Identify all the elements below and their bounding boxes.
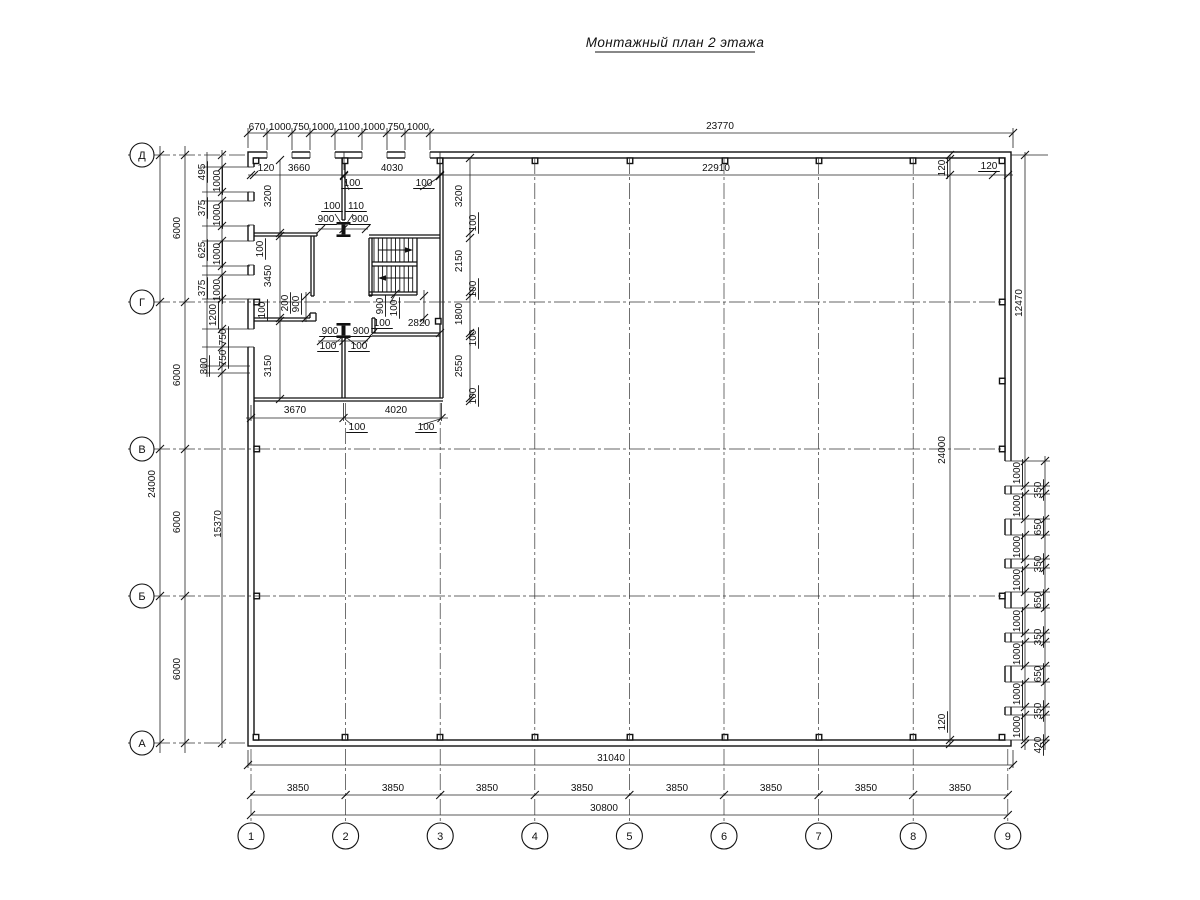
col-axis-label: 8 bbox=[910, 831, 916, 843]
svg-text:100: 100 bbox=[349, 422, 366, 433]
drawing-sheet: Монтажный план 2 этажа 67010007501000110… bbox=[0, 0, 1200, 900]
dim-label: 22910 bbox=[702, 163, 730, 174]
svg-text:670: 670 bbox=[249, 122, 266, 133]
dim-label: 1100 bbox=[338, 122, 360, 133]
row-axis-label: Д bbox=[138, 150, 146, 162]
col-axis-label: 4 bbox=[532, 831, 538, 843]
svg-text:300: 300 bbox=[199, 357, 210, 374]
dim-label: 375 bbox=[197, 277, 208, 299]
dim-label: 1000 bbox=[212, 276, 223, 304]
svg-text:1000: 1000 bbox=[363, 122, 386, 133]
svg-text:100: 100 bbox=[389, 299, 400, 316]
svg-text:100: 100 bbox=[257, 301, 268, 318]
dim-label: 1000 bbox=[1012, 713, 1023, 741]
svg-text:750: 750 bbox=[218, 328, 229, 345]
svg-text:6000: 6000 bbox=[172, 510, 183, 533]
arrow-right-icon bbox=[405, 247, 413, 252]
dim-label: 1800 bbox=[454, 302, 465, 325]
dim-label: 6000 bbox=[172, 510, 183, 533]
dim-label: 750 bbox=[293, 122, 310, 133]
dim-label: 3850 bbox=[571, 783, 594, 794]
dim-label: 3200 bbox=[263, 184, 274, 207]
svg-text:1000: 1000 bbox=[212, 278, 223, 301]
svg-text:24000: 24000 bbox=[147, 470, 158, 498]
col-axis-label: 3 bbox=[437, 831, 443, 843]
svg-text:100: 100 bbox=[468, 280, 479, 297]
svg-text:12470: 12470 bbox=[1014, 289, 1025, 317]
dim-label: 2150 bbox=[454, 249, 465, 272]
window-opening bbox=[247, 275, 255, 299]
dim-label: 1000 bbox=[363, 122, 386, 133]
col-axis-label: 6 bbox=[721, 831, 727, 843]
svg-text:1000: 1000 bbox=[1012, 494, 1023, 517]
svg-text:120: 120 bbox=[258, 163, 275, 174]
svg-text:900: 900 bbox=[318, 214, 335, 225]
svg-text:1000: 1000 bbox=[212, 169, 223, 192]
svg-text:900: 900 bbox=[322, 326, 339, 337]
svg-text:120: 120 bbox=[981, 161, 998, 172]
window-opening bbox=[247, 201, 255, 225]
dim-label: 3850 bbox=[760, 783, 783, 794]
svg-text:3850: 3850 bbox=[287, 783, 310, 794]
svg-text:375: 375 bbox=[197, 199, 208, 216]
dim-label: 24000 bbox=[147, 470, 158, 498]
svg-text:100: 100 bbox=[468, 214, 479, 231]
svg-text:3850: 3850 bbox=[382, 783, 405, 794]
dim-tick bbox=[391, 290, 399, 298]
svg-text:900: 900 bbox=[353, 326, 370, 337]
dim-label: 4030 bbox=[381, 163, 404, 174]
svg-text:1200: 1200 bbox=[208, 303, 219, 326]
svg-text:22910: 22910 bbox=[702, 163, 730, 174]
column-mark bbox=[342, 158, 348, 164]
column-mark bbox=[722, 735, 728, 741]
dim-label: 100 bbox=[346, 422, 368, 433]
dim-label: 3850 bbox=[382, 783, 405, 794]
svg-text:375: 375 bbox=[197, 279, 208, 296]
dim-label: 3850 bbox=[287, 783, 310, 794]
svg-text:24000: 24000 bbox=[937, 436, 948, 464]
window-opening bbox=[247, 167, 255, 192]
dim-label: 495 bbox=[197, 161, 208, 183]
svg-text:1100: 1100 bbox=[338, 122, 360, 133]
svg-text:1000: 1000 bbox=[1012, 642, 1023, 665]
dim-label: 100 bbox=[348, 341, 370, 352]
svg-text:3850: 3850 bbox=[855, 783, 878, 794]
svg-text:4030: 4030 bbox=[381, 163, 404, 174]
dim-label: 1000 bbox=[269, 122, 292, 133]
dim-label: 100 bbox=[341, 178, 363, 189]
svg-text:3850: 3850 bbox=[949, 783, 972, 794]
svg-text:4020: 4020 bbox=[385, 405, 408, 416]
column-mark bbox=[342, 735, 348, 741]
svg-text:6000: 6000 bbox=[172, 363, 183, 386]
dim-label: 375 bbox=[197, 197, 208, 219]
dim-label: 6000 bbox=[172, 216, 183, 239]
dim-label: 3850 bbox=[666, 783, 689, 794]
dim-label: 100 bbox=[468, 327, 479, 349]
arrow-left-icon bbox=[378, 275, 386, 280]
column-mark bbox=[436, 319, 442, 325]
column-mark bbox=[253, 735, 259, 741]
dim-label: 120 bbox=[978, 161, 1000, 172]
svg-text:100: 100 bbox=[344, 178, 361, 189]
dim-label: 350 bbox=[1033, 553, 1044, 575]
svg-text:3660: 3660 bbox=[288, 163, 311, 174]
dim-label: 900 bbox=[349, 214, 371, 225]
svg-text:15370: 15370 bbox=[213, 510, 224, 538]
dim-label: 750 bbox=[388, 122, 405, 133]
svg-text:100: 100 bbox=[374, 318, 391, 329]
drawing-title: Монтажный план 2 этажа bbox=[586, 35, 765, 50]
svg-text:1000: 1000 bbox=[269, 122, 292, 133]
window-opening bbox=[362, 151, 387, 159]
i-beam-web bbox=[342, 326, 346, 336]
dim-label: 1000 bbox=[1012, 566, 1023, 594]
dim-label: 3850 bbox=[855, 783, 878, 794]
svg-text:350: 350 bbox=[1033, 555, 1044, 572]
dim-label: 1200 bbox=[208, 301, 219, 329]
window-opening bbox=[1004, 535, 1012, 559]
dim-label: 900 bbox=[315, 214, 337, 225]
dim-label: 670 bbox=[249, 122, 266, 133]
dim-label: 6000 bbox=[172, 657, 183, 680]
svg-text:900: 900 bbox=[291, 295, 302, 312]
i-beam-flange bbox=[337, 323, 351, 326]
svg-text:3450: 3450 bbox=[263, 264, 274, 287]
dim-label: 1000 bbox=[212, 167, 223, 195]
dim-label: 23770 bbox=[706, 121, 734, 132]
dim-label: 1000 bbox=[1012, 680, 1023, 708]
svg-text:3850: 3850 bbox=[760, 783, 783, 794]
dim-label: 15370 bbox=[213, 510, 224, 538]
col-axis-label: 7 bbox=[816, 831, 822, 843]
dim-label: 3660 bbox=[288, 163, 311, 174]
svg-text:900: 900 bbox=[352, 214, 369, 225]
dim-label: 100 bbox=[371, 318, 393, 329]
svg-text:3670: 3670 bbox=[284, 405, 307, 416]
svg-text:350: 350 bbox=[1033, 481, 1044, 498]
svg-text:1000: 1000 bbox=[1012, 682, 1023, 705]
svg-text:1800: 1800 bbox=[454, 302, 465, 325]
dim-label: 4020 bbox=[385, 405, 408, 416]
svg-text:120: 120 bbox=[937, 713, 948, 730]
dim-label: 350 bbox=[1033, 700, 1044, 722]
svg-text:23770: 23770 bbox=[706, 121, 734, 132]
svg-text:1000: 1000 bbox=[1012, 609, 1023, 632]
column-mark bbox=[627, 735, 633, 741]
svg-text:100: 100 bbox=[255, 240, 266, 257]
svg-text:31040: 31040 bbox=[597, 753, 625, 764]
dim-label: 12470 bbox=[1014, 289, 1025, 317]
dim-label: 120 bbox=[937, 711, 948, 733]
dim-label: 300 bbox=[199, 355, 210, 377]
dim-label: 350 bbox=[1033, 626, 1044, 648]
svg-text:1000: 1000 bbox=[312, 122, 335, 133]
dim-label: 900 bbox=[319, 326, 341, 337]
dim-label: 120 bbox=[258, 163, 275, 174]
window-opening bbox=[1004, 494, 1012, 519]
column-mark bbox=[627, 158, 633, 164]
dim-label: 120 bbox=[937, 157, 948, 179]
svg-text:750: 750 bbox=[293, 122, 310, 133]
dim-label: 100 bbox=[468, 278, 479, 300]
svg-text:1000: 1000 bbox=[212, 203, 223, 226]
svg-text:3850: 3850 bbox=[571, 783, 594, 794]
svg-text:650: 650 bbox=[1033, 665, 1044, 682]
svg-text:350: 350 bbox=[1033, 702, 1044, 719]
dim-label: 100 bbox=[255, 238, 266, 260]
row-axis-label: А bbox=[138, 738, 146, 750]
dim-label: 3450 bbox=[263, 264, 274, 287]
dim-label: 1000 bbox=[212, 201, 223, 229]
window-opening bbox=[1004, 608, 1012, 633]
svg-text:1000: 1000 bbox=[407, 122, 430, 133]
dim-label: 100 bbox=[468, 212, 479, 234]
dim-label: 100 bbox=[413, 178, 435, 189]
dim-label: 650 bbox=[1033, 663, 1044, 685]
column-mark bbox=[999, 735, 1005, 741]
dim-label: 2820 bbox=[408, 318, 431, 329]
svg-text:1000: 1000 bbox=[212, 242, 223, 265]
window-opening bbox=[310, 151, 335, 159]
dim-label: 350 bbox=[1033, 479, 1044, 501]
dim-label: 100 bbox=[257, 299, 268, 321]
window-opening bbox=[247, 329, 255, 347]
col-axis-label: 9 bbox=[1005, 831, 1011, 843]
svg-text:3200: 3200 bbox=[263, 184, 274, 207]
svg-text:100: 100 bbox=[351, 341, 368, 352]
svg-text:2820: 2820 bbox=[408, 318, 431, 329]
svg-text:1000: 1000 bbox=[1012, 461, 1023, 484]
window-opening bbox=[267, 151, 292, 159]
svg-text:1000: 1000 bbox=[1012, 568, 1023, 591]
dimension-line bbox=[335, 214, 341, 223]
svg-text:1000: 1000 bbox=[1012, 715, 1023, 738]
col-axis-label: 2 bbox=[343, 831, 349, 843]
svg-text:200: 200 bbox=[280, 294, 291, 311]
svg-text:625: 625 bbox=[197, 241, 208, 258]
svg-text:350: 350 bbox=[1033, 628, 1044, 645]
column-mark bbox=[816, 158, 822, 164]
dim-label: 1000 bbox=[312, 122, 335, 133]
row-axis-label: Б bbox=[138, 591, 145, 603]
dim-label: 650 bbox=[1033, 516, 1044, 538]
dim-label: 900 bbox=[375, 295, 386, 317]
svg-text:1000: 1000 bbox=[1012, 535, 1023, 558]
window-opening bbox=[1004, 682, 1012, 707]
dim-label: 2550 bbox=[454, 354, 465, 377]
dim-label: 110 bbox=[345, 201, 367, 212]
svg-text:750: 750 bbox=[218, 349, 229, 366]
svg-text:3150: 3150 bbox=[263, 354, 274, 377]
dim-label: 24000 bbox=[937, 436, 948, 464]
svg-text:3850: 3850 bbox=[476, 783, 499, 794]
dim-label: 3150 bbox=[263, 354, 274, 377]
dim-label: 420 bbox=[1033, 734, 1044, 756]
floor-plan-drawing: Монтажный план 2 этажа 67010007501000110… bbox=[0, 0, 1200, 900]
svg-text:100: 100 bbox=[468, 329, 479, 346]
window-opening bbox=[1004, 642, 1012, 666]
dim-label: 1000 bbox=[1012, 459, 1023, 487]
col-axis-label: 1 bbox=[248, 831, 254, 843]
i-beam-flange bbox=[337, 222, 351, 225]
svg-text:495: 495 bbox=[197, 163, 208, 180]
svg-text:650: 650 bbox=[1033, 591, 1044, 608]
svg-text:30800: 30800 bbox=[590, 803, 618, 814]
dim-label: 750 bbox=[218, 347, 229, 369]
svg-text:3200: 3200 bbox=[454, 184, 465, 207]
dim-label: 3200 bbox=[454, 184, 465, 207]
dim-label: 1000 bbox=[212, 240, 223, 268]
svg-text:100: 100 bbox=[418, 422, 435, 433]
window-opening bbox=[1004, 568, 1012, 592]
svg-text:110: 110 bbox=[348, 201, 364, 212]
svg-text:650: 650 bbox=[1033, 518, 1044, 535]
dim-label: 650 bbox=[1033, 589, 1044, 611]
dim-label: 6000 bbox=[172, 363, 183, 386]
dim-label: 100 bbox=[389, 297, 400, 319]
svg-text:3850: 3850 bbox=[666, 783, 689, 794]
dim-label: 200 bbox=[280, 292, 291, 314]
svg-text:100: 100 bbox=[324, 201, 341, 212]
column-mark bbox=[1000, 378, 1006, 384]
dim-label: 1000 bbox=[1012, 533, 1023, 561]
dim-label: 1000 bbox=[1012, 492, 1023, 520]
svg-text:6000: 6000 bbox=[172, 657, 183, 680]
svg-text:100: 100 bbox=[416, 178, 433, 189]
row-axis-label: Г bbox=[139, 297, 145, 309]
dim-label: 1000 bbox=[1012, 640, 1023, 668]
dim-label: 900 bbox=[350, 326, 372, 337]
dim-label: 3850 bbox=[476, 783, 499, 794]
svg-text:6000: 6000 bbox=[172, 216, 183, 239]
column-mark bbox=[999, 158, 1005, 164]
window-opening bbox=[247, 241, 255, 265]
col-axis-label: 5 bbox=[626, 831, 632, 843]
svg-text:900: 900 bbox=[375, 297, 386, 314]
dim-label: 31040 bbox=[597, 753, 625, 764]
svg-text:2550: 2550 bbox=[454, 354, 465, 377]
window-opening bbox=[405, 151, 430, 159]
dim-label: 3670 bbox=[284, 405, 307, 416]
svg-text:120: 120 bbox=[937, 159, 948, 176]
window-opening bbox=[1004, 461, 1012, 486]
dim-label: 100 bbox=[415, 422, 437, 433]
dim-label: 100 bbox=[321, 201, 343, 212]
dim-label: 100 bbox=[468, 385, 479, 407]
column-mark bbox=[816, 735, 822, 741]
dim-label: 100 bbox=[317, 341, 339, 352]
svg-text:2150: 2150 bbox=[454, 249, 465, 272]
dim-label: 750 bbox=[218, 326, 229, 348]
i-beam-flange bbox=[337, 234, 351, 237]
dim-label: 30800 bbox=[590, 803, 618, 814]
svg-text:750: 750 bbox=[388, 122, 405, 133]
dim-label: 3850 bbox=[949, 783, 972, 794]
dim-label: 1000 bbox=[1012, 607, 1023, 635]
dim-label: 900 bbox=[291, 293, 302, 315]
svg-text:100: 100 bbox=[468, 387, 479, 404]
svg-text:100: 100 bbox=[320, 341, 337, 352]
dim-label: 1000 bbox=[407, 122, 430, 133]
svg-text:420: 420 bbox=[1033, 736, 1044, 753]
row-axis-label: В bbox=[138, 444, 145, 456]
dim-label: 625 bbox=[197, 239, 208, 261]
